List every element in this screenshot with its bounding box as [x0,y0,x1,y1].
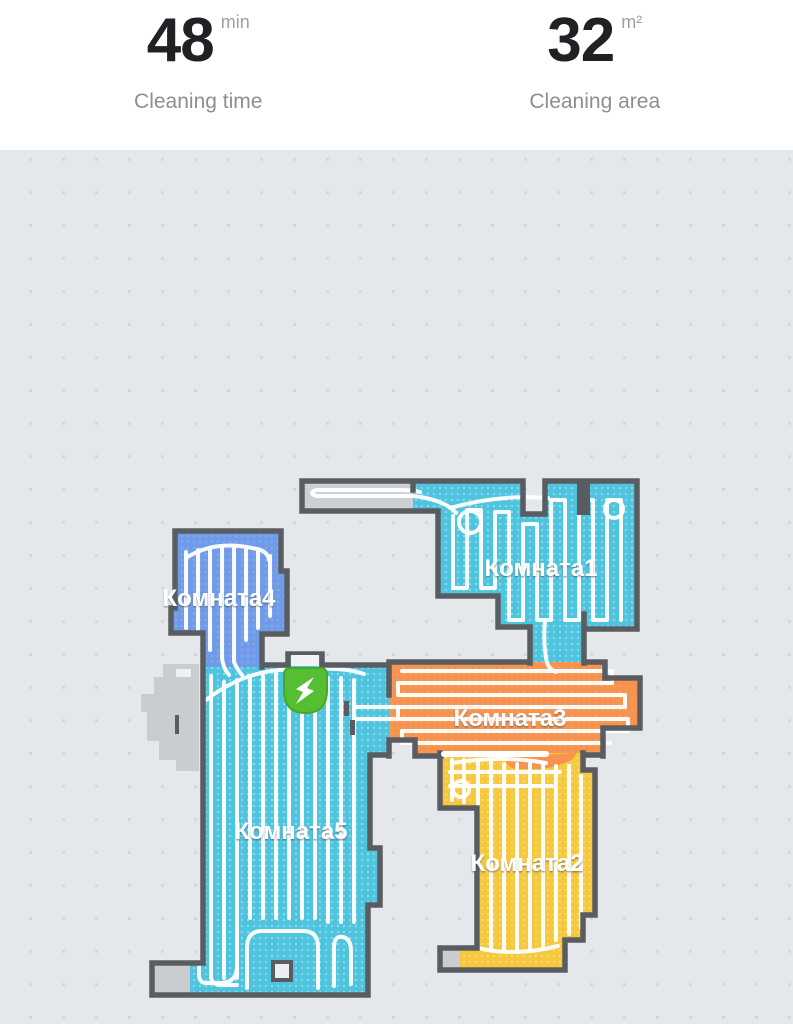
charging-dock-icon[interactable] [284,668,327,713]
room-label-komnata1: Комната1 [484,555,597,582]
room-label-komnata4: Комната4 [162,585,276,612]
wall-stub [577,481,590,515]
doorway-threshold [441,751,549,757]
room-label-komnata5: Комната5 [234,818,347,845]
cleaning-time-label: Cleaning time [134,90,262,114]
cleaning-area-unit: m² [621,12,642,33]
unknown-area-rect [152,963,190,993]
dock-base [291,655,319,666]
map-island-obstacle [273,962,291,980]
cleaning-area-value: 32 [547,10,614,72]
unknown-area-blob [141,664,199,771]
stats-header: 48 min Cleaning time 32 m² Cleaning area [0,0,793,150]
room-label-komnata2: Комната2 [470,850,583,877]
unknown-area-small [441,949,460,969]
cleaning-time-unit: min [221,12,250,33]
wall-obstacle-3 [175,715,179,734]
cleaning-area-label: Cleaning area [529,90,660,114]
unknown-area-highlight [176,669,191,677]
wall-obstacle-2 [350,720,355,735]
room-label-komnata3: Комната3 [453,705,566,732]
cleaning-area-stat: 32 m² Cleaning area [397,0,793,114]
map-canvas[interactable]: Комната1 Комната2 Комната3 Комната4 Комн… [0,150,793,1024]
wall-obstacle-1 [344,701,349,716]
cleaning-time-stat: 48 min Cleaning time [0,0,397,114]
cleaning-time-value: 48 [147,10,214,72]
